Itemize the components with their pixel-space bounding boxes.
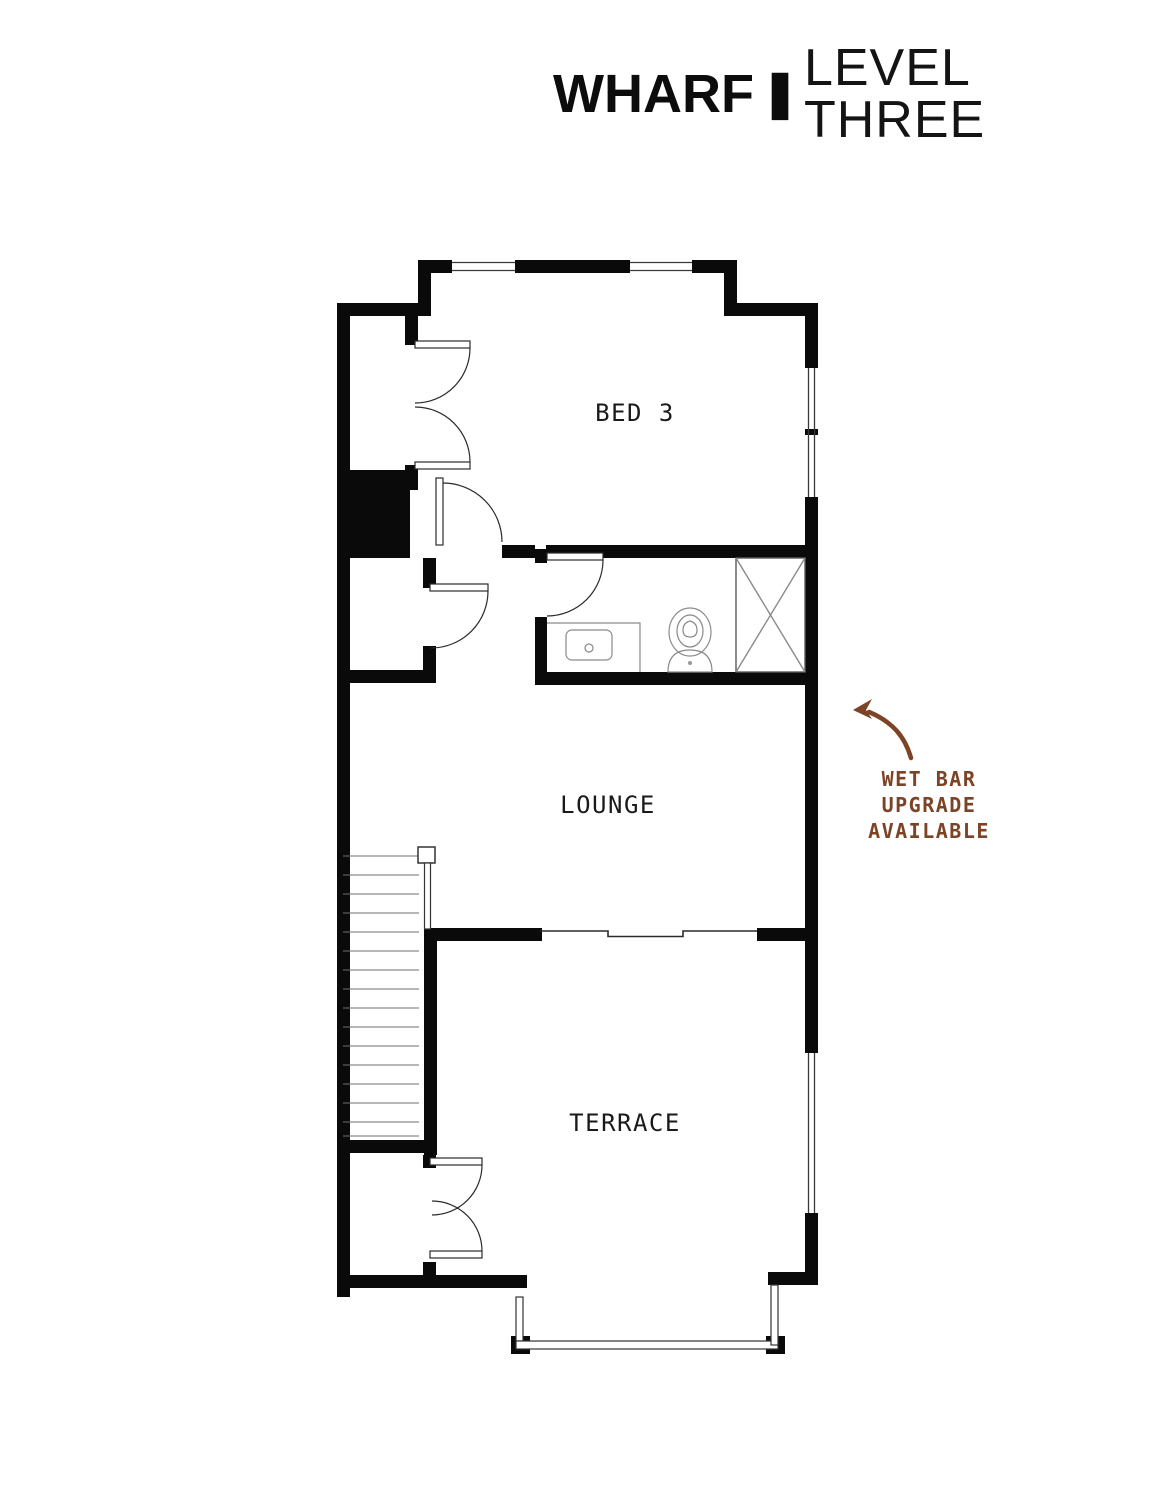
sink	[566, 630, 612, 660]
room-label-bed3: BED 3	[595, 399, 675, 427]
window-top-right	[630, 263, 692, 271]
annotation-line-1: WET BAR	[882, 767, 977, 791]
room-label-lounge: LOUNGE	[560, 791, 656, 819]
wall-segment	[515, 260, 630, 273]
wall-segment	[337, 670, 436, 683]
wall-segment	[757, 928, 818, 941]
wall-segment	[337, 1275, 527, 1288]
vanity	[547, 623, 640, 672]
double-door-lower-closet	[430, 1158, 482, 1258]
railing-bottom	[516, 1341, 778, 1349]
wall-segment	[535, 672, 818, 685]
railing-right	[771, 1285, 778, 1345]
wall-segment	[337, 1140, 432, 1153]
faucet-dot	[585, 644, 593, 652]
wall-segment	[337, 470, 418, 483]
annotation-arrow	[853, 699, 911, 758]
page: WHARF | LEVEL THREE	[0, 0, 1158, 1500]
annotation-line-2: UPGRADE	[882, 793, 977, 817]
stair-handrail	[425, 863, 431, 929]
window-terrace-right	[809, 1053, 815, 1213]
wall-segment	[424, 928, 542, 941]
room-label-terrace: TERRACE	[569, 1109, 681, 1137]
railing-left	[516, 1297, 523, 1341]
wall-segment	[535, 549, 547, 563]
door-lounge-closet	[430, 584, 488, 648]
stair-treads	[343, 856, 419, 1136]
wall-segment	[502, 545, 535, 558]
window-top-left	[452, 263, 515, 271]
annotation-text: WET BAR UPGRADE AVAILABLE	[868, 767, 990, 843]
annotation-line-3: AVAILABLE	[868, 819, 990, 843]
chase-poche	[337, 483, 410, 558]
bathroom-fixtures	[547, 558, 805, 672]
shower	[736, 558, 805, 672]
stair-newel	[418, 847, 435, 863]
door-bed3	[436, 478, 502, 545]
stairs	[343, 847, 435, 1136]
wall-segment	[405, 310, 418, 345]
wall-segment	[805, 429, 818, 435]
double-door-upper-closet	[415, 341, 470, 469]
door-bathroom	[547, 553, 603, 616]
wall-segment	[805, 940, 818, 1053]
sliding-door-terrace	[540, 931, 757, 937]
wall-segment	[423, 1262, 436, 1275]
arrow-head	[853, 699, 872, 719]
wall-segment	[805, 497, 818, 940]
terrace-railing	[516, 1285, 778, 1349]
toilet	[668, 608, 712, 672]
wall-segment	[805, 303, 818, 368]
room-labels: BED 3 LOUNGE TERRACE	[560, 399, 681, 1137]
floor-plan-svg: BED 3 LOUNGE TERRACE WET BAR UPGRADE AVA…	[0, 0, 1158, 1500]
wall-segment	[424, 928, 437, 1155]
arrow-curve	[869, 712, 911, 758]
wall-segment	[724, 303, 818, 316]
wall-segment	[768, 1272, 818, 1285]
